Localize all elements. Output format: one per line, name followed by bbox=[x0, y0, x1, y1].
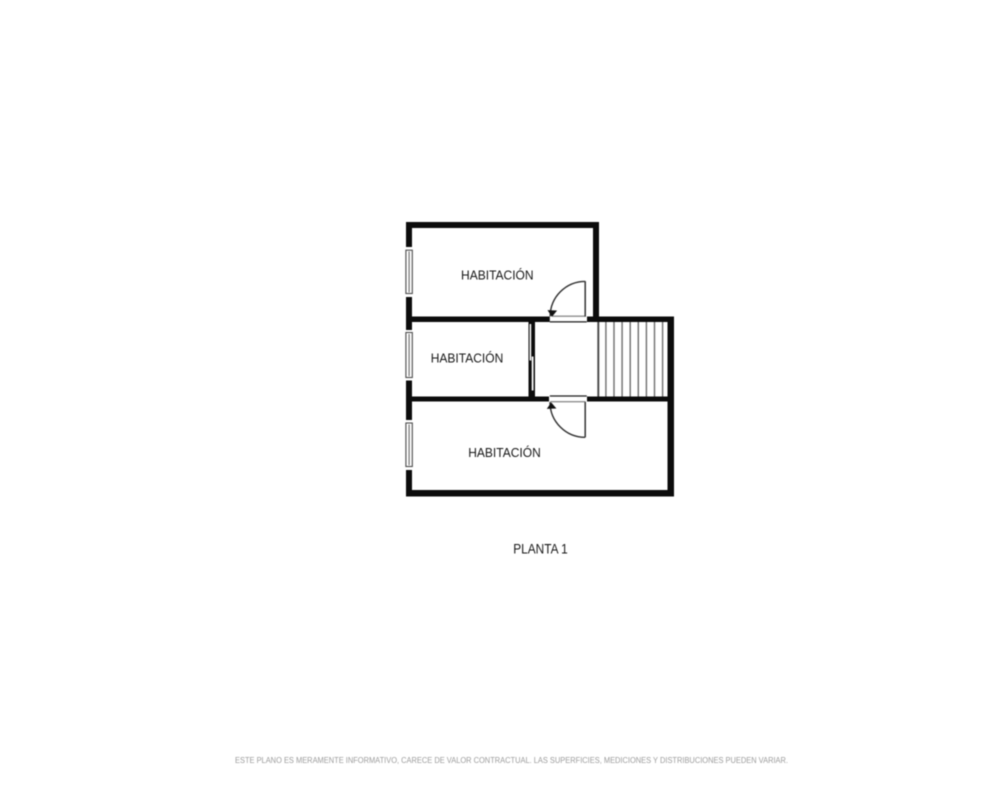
svg-text:PLANTA 1: PLANTA 1 bbox=[513, 542, 568, 557]
svg-text:HABITACIÓN: HABITACIÓN bbox=[431, 351, 504, 366]
svg-text:HABITACIÓN: HABITACIÓN bbox=[468, 445, 541, 460]
svg-text:HABITACIÓN: HABITACIÓN bbox=[461, 268, 534, 283]
svg-text:ESTE PLANO ES MERAMENTE INFORM: ESTE PLANO ES MERAMENTE INFORMATIVO, CAR… bbox=[235, 756, 788, 765]
